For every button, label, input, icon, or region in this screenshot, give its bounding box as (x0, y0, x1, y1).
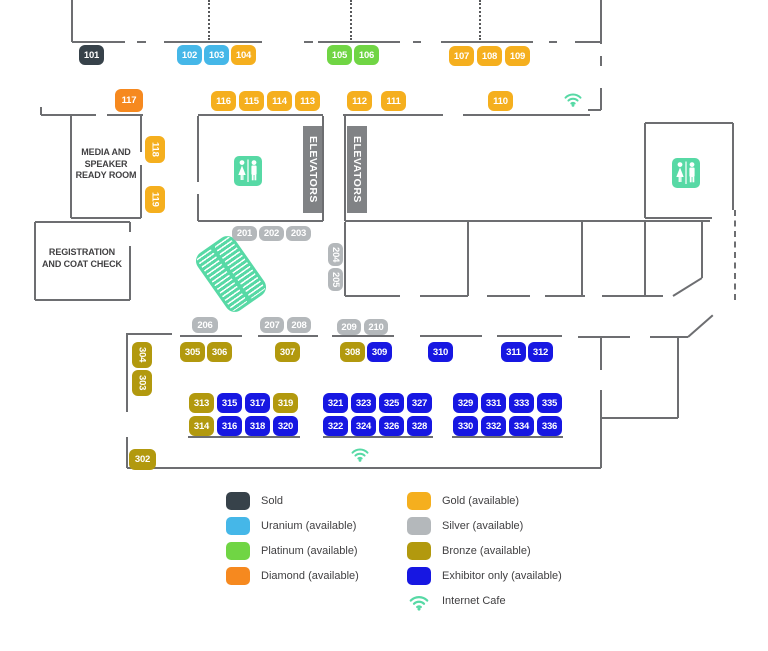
booth-number: 204 (330, 247, 341, 262)
wall (258, 335, 318, 337)
wall-dashed (549, 41, 557, 43)
booth-201[interactable]: 201 (232, 226, 257, 241)
booth-323[interactable]: 323 (351, 393, 376, 413)
booth-number: 308 (345, 347, 360, 358)
wall (140, 115, 142, 152)
elevator-bank-left: ELEVATORS (303, 126, 323, 213)
wall (701, 222, 703, 278)
wall (467, 222, 469, 296)
booth-101[interactable]: 101 (79, 45, 104, 65)
legend-row-exhibitor-only-available: Exhibitor only (available) (407, 566, 562, 586)
booth-330[interactable]: 330 (453, 416, 478, 436)
legend-swatch-exhibitor (407, 567, 431, 585)
booth-number: 322 (328, 421, 343, 432)
legend-row-bronze-available: Bronze (available) (407, 541, 531, 561)
booth-113[interactable]: 113 (295, 91, 320, 111)
exhibit-floor-plan: MEDIA AND SPEAKER READY ROOM REGISTRATIO… (0, 0, 768, 651)
booth-305[interactable]: 305 (180, 342, 205, 362)
legend-label: Sold (261, 495, 283, 507)
booth-number: 116 (216, 96, 231, 107)
wall (487, 295, 530, 297)
booth-number: 105 (332, 50, 347, 61)
wall (318, 41, 400, 43)
wall (332, 335, 394, 337)
wall (198, 220, 323, 222)
legend-label: Exhibitor only (available) (442, 570, 562, 582)
wall (197, 116, 199, 182)
door-marker (350, 0, 352, 40)
booth-112[interactable]: 112 (347, 91, 372, 111)
booth-316[interactable]: 316 (217, 416, 242, 436)
wall (129, 246, 131, 300)
booth-number: 334 (514, 421, 529, 432)
wall (70, 115, 72, 218)
booth-331[interactable]: 331 (481, 393, 506, 413)
booth-109[interactable]: 109 (505, 46, 530, 66)
legend-swatch-uranium (226, 517, 250, 535)
booth-335[interactable]: 335 (537, 393, 562, 413)
booth-334[interactable]: 334 (509, 416, 534, 436)
wall (677, 337, 679, 418)
booth-205[interactable]: 205 (328, 268, 343, 291)
booth-number: 331 (486, 398, 501, 409)
restroom-icon (234, 156, 262, 186)
booth-116[interactable]: 116 (211, 91, 236, 111)
wall (600, 390, 602, 468)
wifi-icon (563, 90, 583, 112)
wall (71, 0, 73, 42)
wall (107, 114, 143, 116)
booth-number: 328 (412, 421, 427, 432)
booth-210[interactable]: 210 (364, 319, 388, 335)
wall-dashed (304, 41, 313, 43)
booth-number: 319 (278, 398, 293, 409)
booth-number: 114 (272, 96, 287, 107)
booth-117[interactable]: 117 (115, 89, 143, 112)
booth-332[interactable]: 332 (481, 416, 506, 436)
booth-320[interactable]: 320 (273, 416, 298, 436)
booth-333[interactable]: 333 (509, 393, 534, 413)
booth-number: 317 (250, 398, 265, 409)
booth-336[interactable]: 336 (537, 416, 562, 436)
wall (198, 114, 323, 116)
wall (323, 436, 433, 438)
booth-304[interactable]: 304 (132, 342, 152, 368)
booth-number: 201 (237, 228, 252, 239)
door-marker (208, 0, 210, 40)
legend-row-silver-available: Silver (available) (407, 516, 523, 536)
wall (581, 222, 583, 296)
legend-label: Uranium (available) (261, 520, 356, 532)
door-marker (479, 0, 481, 40)
wall (644, 222, 646, 296)
booth-number: 323 (356, 398, 371, 409)
wall (650, 336, 688, 338)
legend-row-gold-available: Gold (available) (407, 491, 519, 511)
booth-number: 207 (264, 320, 279, 331)
wall (420, 335, 482, 337)
wall (129, 222, 131, 232)
booth-311[interactable]: 311 (501, 342, 526, 362)
wall (732, 123, 734, 210)
booth-314[interactable]: 314 (189, 416, 214, 436)
booth-302[interactable]: 302 (129, 449, 156, 470)
legend-swatch-silver (407, 517, 431, 535)
wall (345, 220, 710, 222)
booth-303[interactable]: 303 (132, 370, 152, 396)
booth-number: 302 (135, 454, 150, 465)
booth-number: 107 (454, 51, 469, 62)
booth-number: 330 (458, 421, 473, 432)
legend-row-internet-cafe: Internet Cafe (407, 591, 506, 611)
booth-number: 208 (291, 320, 306, 331)
booth-321[interactable]: 321 (323, 393, 348, 413)
booth-104[interactable]: 104 (231, 45, 256, 65)
booth-208[interactable]: 208 (287, 317, 311, 333)
wall (420, 295, 468, 297)
booth-202[interactable]: 202 (259, 226, 284, 241)
legend-swatch-sold (226, 492, 250, 510)
booth-number: 205 (330, 272, 341, 287)
booth-number: 101 (84, 50, 99, 61)
booth-number: 112 (352, 96, 367, 107)
wall (188, 436, 300, 438)
wall (645, 217, 712, 219)
booth-number: 115 (244, 96, 259, 107)
wall (322, 116, 324, 221)
legend-label: Internet Cafe (442, 595, 506, 607)
booth-number: 113 (300, 96, 315, 107)
wall (140, 165, 142, 218)
wall (441, 41, 533, 43)
booth-317[interactable]: 317 (245, 393, 270, 413)
booth-number: 333 (514, 398, 529, 409)
wall (71, 217, 141, 219)
wall (127, 333, 172, 335)
media-speaker-room-label: MEDIA AND SPEAKER READY ROOM (69, 147, 143, 182)
wall-dashed (137, 41, 146, 43)
wall (127, 467, 601, 469)
booth-number: 311 (506, 347, 521, 358)
booth-107[interactable]: 107 (449, 46, 474, 66)
booth-328[interactable]: 328 (407, 416, 432, 436)
registration-coat-check-label: REGISTRATION AND COAT CHECK (36, 247, 128, 270)
booth-number: 119 (150, 192, 161, 207)
booth-number: 206 (197, 320, 212, 331)
booth-103[interactable]: 103 (204, 45, 229, 65)
wall (601, 417, 678, 419)
booth-308[interactable]: 308 (340, 342, 365, 362)
booth-318[interactable]: 318 (245, 416, 270, 436)
booth-number: 210 (368, 322, 383, 333)
booth-number: 336 (542, 421, 557, 432)
legend-label: Diamond (available) (261, 570, 359, 582)
elevators-label: ELEVATORS (307, 136, 319, 203)
wall (34, 222, 36, 300)
booth-206[interactable]: 206 (192, 317, 218, 333)
legend-label: Bronze (available) (442, 545, 531, 557)
wall-dashed (734, 210, 736, 300)
booth-110[interactable]: 110 (488, 91, 513, 111)
booth-325[interactable]: 325 (379, 393, 404, 413)
booth-207[interactable]: 207 (260, 317, 284, 333)
booth-118[interactable]: 118 (145, 136, 165, 163)
elevator-bank-right: ELEVATORS (347, 126, 367, 213)
booth-number: 318 (250, 421, 265, 432)
booth-number: 329 (458, 398, 473, 409)
booth-111[interactable]: 111 (381, 91, 406, 111)
legend-label: Silver (available) (442, 520, 523, 532)
booth-114[interactable]: 114 (267, 91, 292, 111)
wall (343, 114, 443, 116)
booth-number: 110 (493, 96, 508, 107)
booth-number: 304 (137, 347, 148, 362)
booth-329[interactable]: 329 (453, 393, 478, 413)
internet-cafe-wifi-icon (407, 592, 431, 611)
booth-310[interactable]: 310 (428, 342, 453, 362)
booth-number: 332 (486, 421, 501, 432)
legend-swatch-gold (407, 492, 431, 510)
booth-number: 117 (122, 95, 137, 106)
booth-327[interactable]: 327 (407, 393, 432, 413)
escalator-icon (192, 232, 270, 316)
wall (126, 437, 128, 468)
booth-number: 307 (280, 347, 295, 358)
wall (180, 335, 242, 337)
booth-number: 202 (264, 228, 279, 239)
booth-119[interactable]: 119 (145, 186, 165, 213)
booth-108[interactable]: 108 (477, 46, 502, 66)
legend-swatch-bronze (407, 542, 431, 560)
booth-number: 106 (359, 50, 374, 61)
booth-309[interactable]: 309 (367, 342, 392, 362)
booth-number: 111 (386, 96, 400, 107)
booth-number: 103 (209, 50, 224, 61)
wall (600, 0, 602, 44)
wall (497, 335, 562, 337)
legend-row-sold: Sold (226, 491, 283, 511)
booth-324[interactable]: 324 (351, 416, 376, 436)
wifi-icon (350, 445, 370, 467)
booth-312[interactable]: 312 (528, 342, 553, 362)
wall (35, 221, 130, 223)
booth-number: 324 (356, 421, 371, 432)
legend-label: Gold (available) (442, 495, 519, 507)
elevators-label: ELEVATORS (351, 136, 363, 203)
booth-319[interactable]: 319 (273, 393, 298, 413)
wall-dashed (600, 56, 602, 66)
wall (645, 122, 733, 124)
booth-number: 327 (412, 398, 427, 409)
booth-number: 316 (222, 421, 237, 432)
booth-number: 203 (291, 228, 306, 239)
wall (452, 436, 563, 438)
wall (35, 299, 130, 301)
booth-313[interactable]: 313 (189, 393, 214, 413)
booth-number: 104 (236, 50, 251, 61)
booth-209[interactable]: 209 (337, 319, 361, 335)
booth-number: 313 (194, 398, 209, 409)
wall (41, 114, 96, 116)
booth-105[interactable]: 105 (327, 45, 352, 65)
booth-106[interactable]: 106 (354, 45, 379, 65)
booth-number: 303 (137, 375, 148, 390)
legend-row-diamond-available: Diamond (available) (226, 566, 359, 586)
wall-dashed (413, 41, 421, 43)
booth-102[interactable]: 102 (177, 45, 202, 65)
wall (40, 107, 42, 115)
booth-326[interactable]: 326 (379, 416, 404, 436)
booth-number: 108 (482, 51, 497, 62)
booth-number: 306 (212, 347, 227, 358)
wall (644, 123, 646, 218)
wall-diagonal (672, 277, 702, 297)
booth-number: 305 (185, 347, 200, 358)
wall (545, 295, 585, 297)
booth-number: 309 (372, 347, 387, 358)
booth-306[interactable]: 306 (207, 342, 232, 362)
wall (600, 88, 602, 110)
legend-row-uranium-available: Uranium (available) (226, 516, 356, 536)
wall (344, 222, 346, 296)
legend-swatch-diamond (226, 567, 250, 585)
wall (197, 194, 199, 221)
booth-number: 314 (194, 421, 209, 432)
restroom-icon (672, 158, 700, 188)
booth-number: 326 (384, 421, 399, 432)
legend-row-platinum-available: Platinum (available) (226, 541, 358, 561)
wall (602, 295, 663, 297)
wall (72, 41, 125, 43)
booth-number: 310 (433, 347, 448, 358)
booth-number: 102 (182, 50, 197, 61)
wall (345, 295, 400, 297)
booth-number: 335 (542, 398, 557, 409)
booth-number: 325 (384, 398, 399, 409)
booth-203[interactable]: 203 (286, 226, 311, 241)
booth-number: 312 (533, 347, 548, 358)
wall (578, 336, 630, 338)
booth-204[interactable]: 204 (328, 243, 343, 266)
legend-swatch-platinum (226, 542, 250, 560)
wall (164, 41, 262, 43)
wall (575, 41, 601, 43)
wall-diagonal (687, 314, 713, 337)
booth-number: 118 (150, 142, 161, 157)
booth-115[interactable]: 115 (239, 91, 264, 111)
wall (463, 114, 590, 116)
booth-315[interactable]: 315 (217, 393, 242, 413)
wall (126, 333, 128, 412)
booth-number: 209 (341, 322, 356, 333)
booth-322[interactable]: 322 (323, 416, 348, 436)
wall (344, 116, 346, 221)
wall (600, 337, 602, 370)
booth-number: 320 (278, 421, 293, 432)
booth-number: 315 (222, 398, 237, 409)
booth-number: 321 (328, 398, 343, 409)
booth-number: 109 (510, 51, 525, 62)
legend-label: Platinum (available) (261, 545, 358, 557)
booth-307[interactable]: 307 (275, 342, 300, 362)
